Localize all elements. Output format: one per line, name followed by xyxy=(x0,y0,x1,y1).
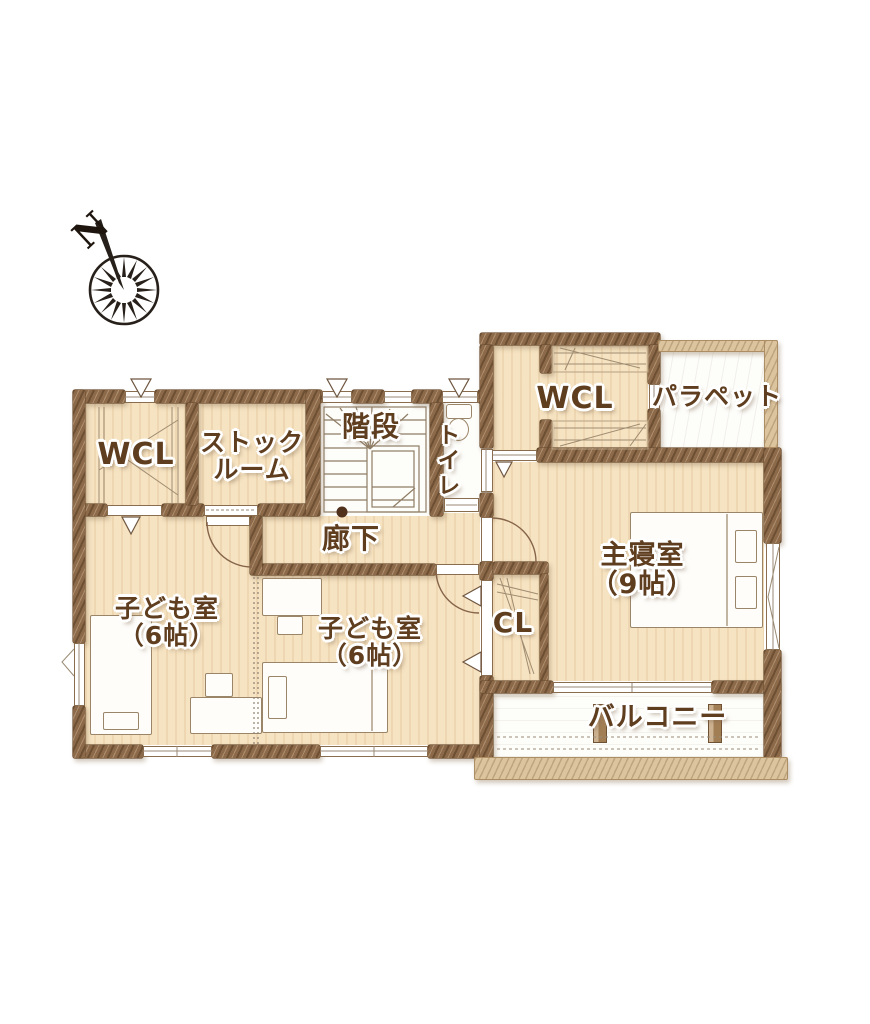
label-wcl-right: WCL xyxy=(503,383,647,415)
pillow-child-center xyxy=(268,676,287,719)
label-stock-room-line1: ストック xyxy=(200,428,304,457)
label-stairs: 階段 xyxy=(312,412,430,442)
closet-opening-wcl-left xyxy=(107,505,162,516)
label-wcl-left: WCL xyxy=(76,439,196,471)
label-cl: CL xyxy=(482,608,544,638)
label-child-west-size: （6帖） xyxy=(119,621,215,650)
label-child-west-name: 子ども室 xyxy=(115,594,219,623)
label-master-size: （9帖） xyxy=(591,569,695,600)
label-parapet: パラペット xyxy=(640,383,794,410)
label-master-name: 主寝室 xyxy=(601,540,685,571)
window xyxy=(322,391,352,403)
pillow-child-west xyxy=(103,712,139,730)
label-child-center-name: 子ども室 xyxy=(318,614,422,643)
desk-child-center xyxy=(262,578,322,616)
door-leaf-child-center xyxy=(436,564,479,575)
label-hallway: 廊下 xyxy=(292,524,410,554)
floor-plan-canvas: N WCL ストック ルーム 階段 トイレ 廊下 子ども室 （6帖） 子ども室 … xyxy=(0,0,870,1024)
label-balcony: バルコニー xyxy=(565,703,750,732)
openings xyxy=(0,0,870,1024)
label-child-room-center: 子ども室 （6帖） xyxy=(288,615,452,669)
opening-wcl-right-entry xyxy=(492,450,537,461)
label-child-room-west: 子ども室 （6帖） xyxy=(86,595,248,649)
window xyxy=(384,391,412,403)
door-leaf-child-west xyxy=(206,516,250,526)
window xyxy=(320,746,428,757)
desk-child-west xyxy=(190,697,262,734)
pillow-master-2 xyxy=(735,576,757,609)
label-stock-room: ストック ルーム xyxy=(186,429,318,483)
window xyxy=(442,391,478,403)
pillow-master-1 xyxy=(735,530,757,563)
window xyxy=(74,643,85,706)
window xyxy=(125,391,155,403)
sliding-door-stockroom xyxy=(204,505,258,516)
door-leaf-master xyxy=(481,517,493,562)
label-master-bedroom: 主寝室 （9帖） xyxy=(560,541,725,599)
chair-child-west xyxy=(205,673,233,697)
label-stock-room-line2: ルーム xyxy=(213,455,290,484)
label-toilet: トイレ xyxy=(433,413,458,508)
window xyxy=(766,543,780,650)
window xyxy=(143,746,212,757)
label-child-center-size: （6帖） xyxy=(322,641,418,670)
sliding-window-balcony xyxy=(553,682,712,693)
